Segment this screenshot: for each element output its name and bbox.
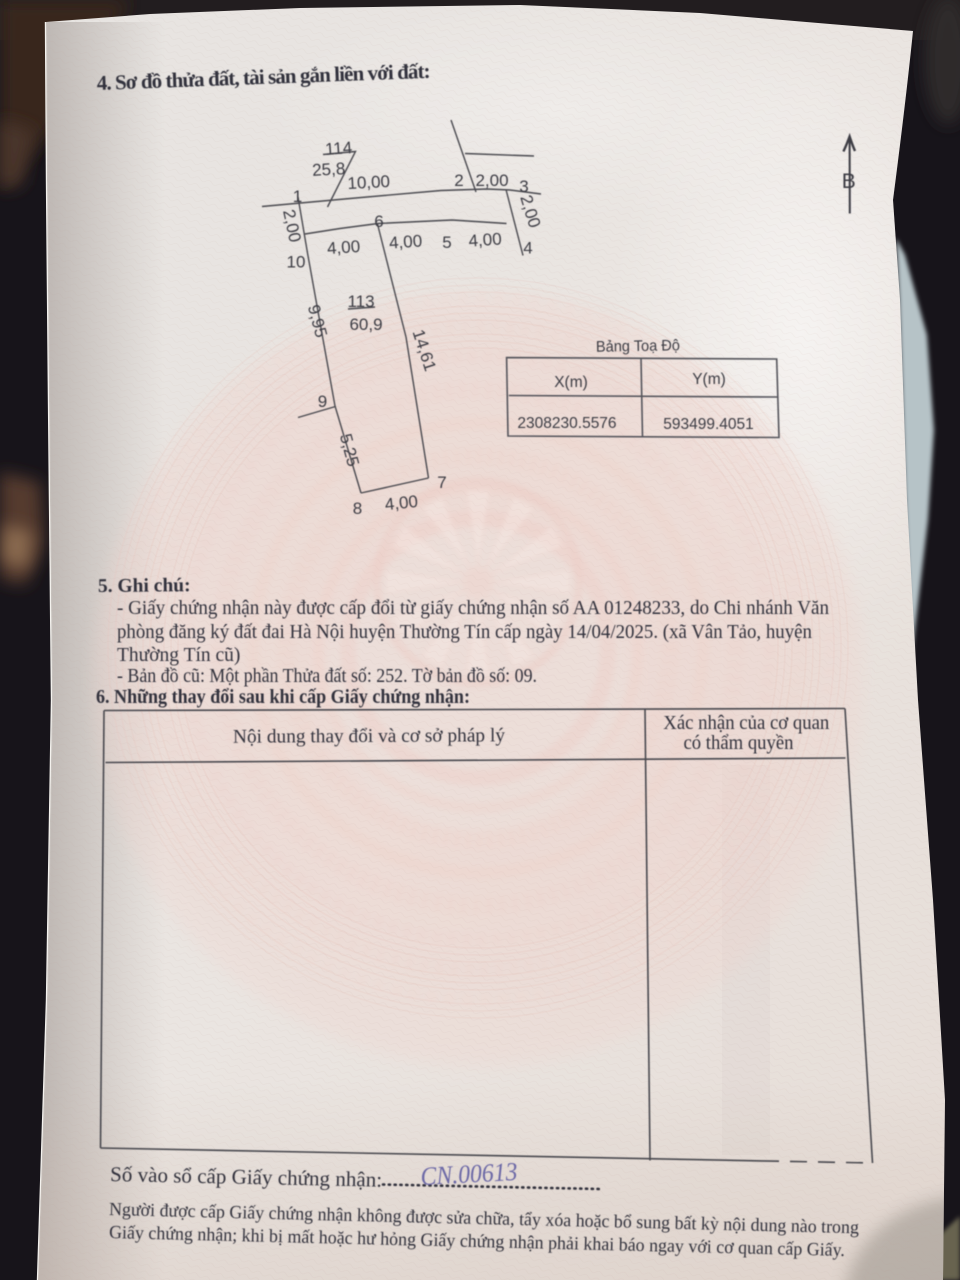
svg-text:5. Ghi chú:: 5. Ghi chú: bbox=[98, 575, 191, 597]
svg-text:10: 10 bbox=[287, 253, 306, 272]
svg-text:- Bản đồ cũ: Một phần Thửa đất: - Bản đồ cũ: Một phần Thửa đất số: 252. … bbox=[117, 666, 537, 687]
svg-text:4,00: 4,00 bbox=[388, 231, 422, 252]
svg-text:25,8: 25,8 bbox=[312, 159, 346, 180]
svg-text:10,00: 10,00 bbox=[347, 172, 390, 193]
svg-text:6: 6 bbox=[374, 212, 383, 231]
svg-text:113: 113 bbox=[347, 292, 374, 311]
svg-text:CN.00613: CN.00613 bbox=[420, 1157, 518, 1191]
svg-text:4,00: 4,00 bbox=[326, 237, 360, 258]
svg-text:3: 3 bbox=[519, 177, 528, 196]
svg-text:6. Những thay đổi sau khi cấp: 6. Những thay đổi sau khi cấp Giấy chứng… bbox=[96, 687, 470, 708]
svg-text:X(m): X(m) bbox=[554, 374, 588, 391]
svg-text:1: 1 bbox=[293, 187, 302, 206]
svg-text:4,00: 4,00 bbox=[384, 492, 419, 514]
svg-text:114: 114 bbox=[324, 138, 352, 159]
svg-text:9: 9 bbox=[318, 392, 327, 411]
svg-text:2: 2 bbox=[454, 171, 463, 190]
svg-text:Nội dung thay đổi và cơ sở phá: Nội dung thay đổi và cơ sở pháp lý bbox=[233, 725, 505, 747]
svg-text:593499.4051: 593499.4051 bbox=[663, 416, 754, 433]
svg-text:B: B bbox=[842, 170, 856, 193]
svg-text:Bảng Toạ Độ: Bảng Toạ Độ bbox=[596, 337, 680, 355]
svg-text:7: 7 bbox=[437, 473, 446, 492]
svg-text:8: 8 bbox=[353, 499, 362, 518]
svg-text:4: 4 bbox=[523, 239, 532, 258]
svg-text:Xác nhận của cơ quan: Xác nhận của cơ quan bbox=[663, 713, 829, 734]
svg-text:5: 5 bbox=[442, 233, 451, 252]
svg-text:4,00: 4,00 bbox=[468, 229, 502, 250]
svg-text:2,00: 2,00 bbox=[475, 171, 508, 190]
svg-text:2308230.5576: 2308230.5576 bbox=[517, 415, 616, 432]
svg-text:Y(m): Y(m) bbox=[692, 371, 726, 388]
svg-text:- Giấy chứng nhận này được cấp: - Giấy chứng nhận này được cấp đổi từ gi… bbox=[117, 598, 829, 619]
svg-text:Thường Tín cũ): Thường Tín cũ) bbox=[117, 645, 240, 666]
svg-text:có thẩm quyền: có thẩm quyền bbox=[684, 733, 794, 754]
svg-text:phòng đăng ký đất đai Hà Nội h: phòng đăng ký đất đai Hà Nội huyện Thườn… bbox=[117, 622, 812, 643]
svg-text:60,9: 60,9 bbox=[349, 315, 382, 334]
